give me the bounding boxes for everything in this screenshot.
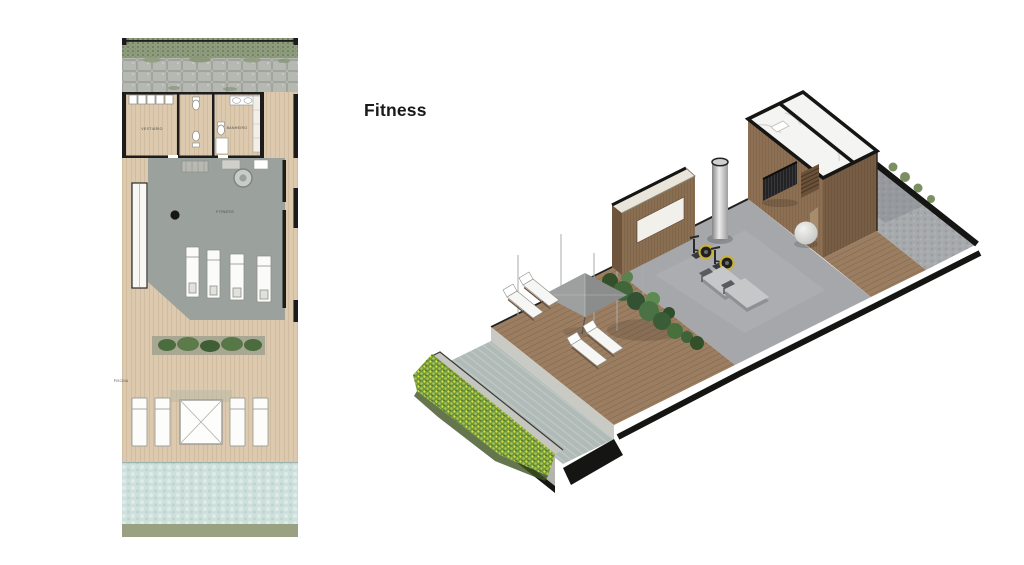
fitness-3d-view [405,85,1024,485]
iso-exercise-ball [794,222,818,249]
label-banheiro: BANHEIRO [227,126,248,130]
label-piscina: PISCINA [114,379,129,383]
fitness-floor-plan: VESTIÁRIO BANHEIRO [122,38,298,538]
plan-column [170,210,179,219]
label-fitness: FITNESS [216,210,234,214]
plan-hedge-strip [122,38,298,58]
label-vestiario: VESTIÁRIO [141,127,162,131]
plan-umbrella [180,400,222,444]
plan-lockers [129,95,173,104]
presentation-slide: VESTIÁRIO BANHEIRO [0,0,1024,565]
plan-pool [122,462,298,537]
plan-stone-path [122,57,298,93]
plan-green-strip [122,524,298,537]
